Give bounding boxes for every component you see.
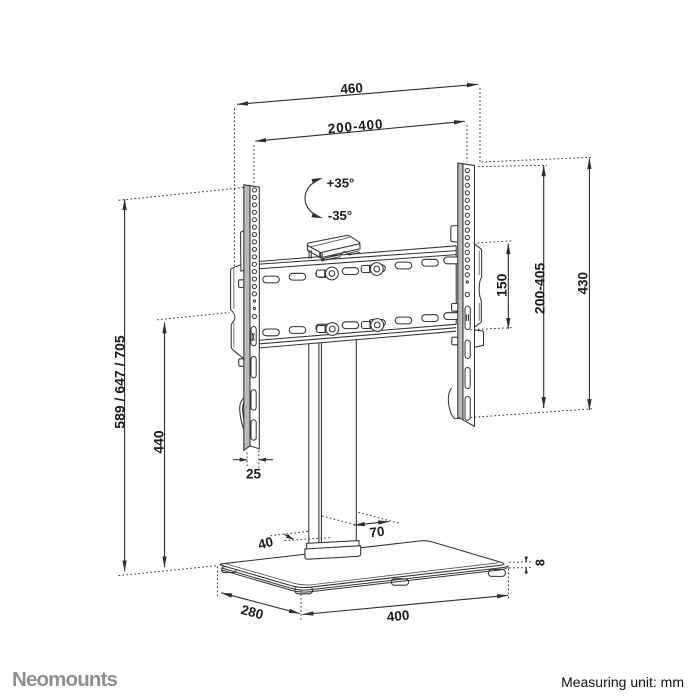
svg-text:8: 8 xyxy=(533,559,547,566)
svg-text:25: 25 xyxy=(246,467,262,482)
svg-text:150: 150 xyxy=(493,273,509,297)
svg-text:430: 430 xyxy=(575,272,590,295)
svg-text:200-400: 200-400 xyxy=(327,116,384,136)
svg-text:70: 70 xyxy=(369,524,386,541)
svg-text:440: 440 xyxy=(150,430,166,454)
svg-text:589 / 647 / 705: 589 / 647 / 705 xyxy=(111,335,127,429)
svg-text:400: 400 xyxy=(386,608,410,625)
svg-text:200-405: 200-405 xyxy=(531,263,547,315)
svg-text:-35°: -35° xyxy=(328,208,352,223)
svg-text:460: 460 xyxy=(340,80,364,97)
svg-text:40: 40 xyxy=(256,534,274,552)
svg-text:280: 280 xyxy=(239,602,265,622)
svg-text:+35°: +35° xyxy=(327,176,355,191)
